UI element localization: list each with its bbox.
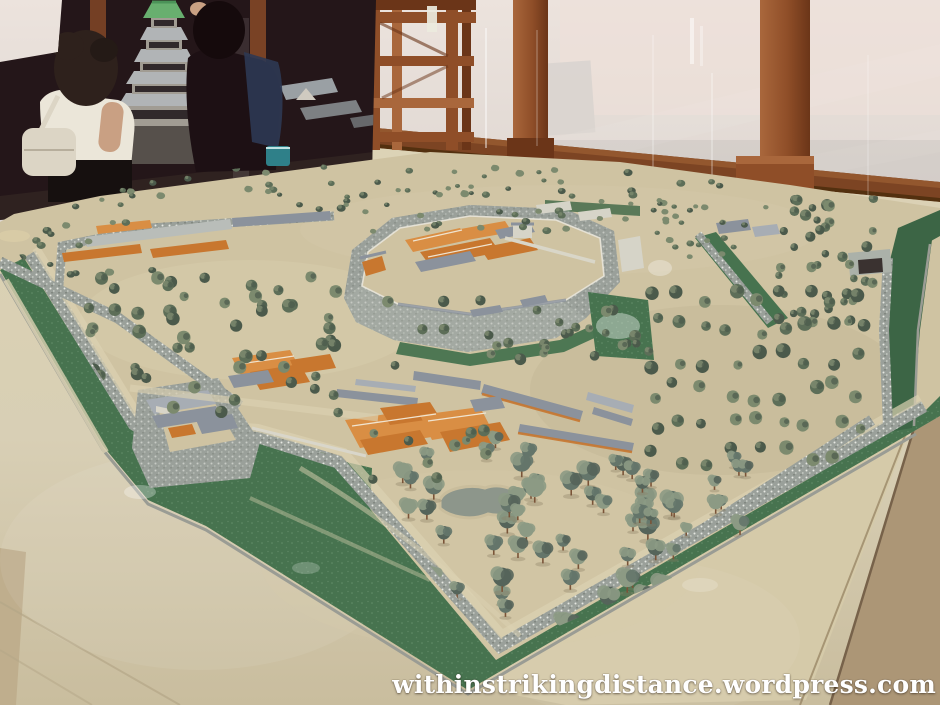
model-tree xyxy=(669,285,682,298)
model-tree xyxy=(672,414,684,426)
model-tree xyxy=(188,381,201,394)
water-reflection xyxy=(682,578,718,592)
model-tree xyxy=(749,411,762,424)
model-tree xyxy=(780,322,792,334)
model-tree xyxy=(776,263,785,272)
model-tree xyxy=(480,448,492,460)
model-tree xyxy=(776,343,791,358)
east-moat-bank xyxy=(884,258,888,426)
head xyxy=(193,1,245,59)
model-tree xyxy=(585,324,593,332)
model-tree xyxy=(779,440,793,454)
model-tree xyxy=(790,310,797,317)
frame-label-card xyxy=(427,6,437,32)
model-tree xyxy=(856,424,866,434)
model-tree xyxy=(815,225,824,234)
model-tree xyxy=(109,303,122,316)
model-tree xyxy=(151,271,164,284)
model-tree xyxy=(278,361,290,373)
model-tree xyxy=(166,312,180,326)
model-tree xyxy=(478,424,490,436)
model-tree xyxy=(750,293,763,306)
model-tree xyxy=(644,347,653,356)
leaning-panel xyxy=(543,60,596,135)
model-tree xyxy=(423,457,434,468)
model-tree xyxy=(503,338,513,348)
tunnel-gate xyxy=(848,249,892,276)
model-tree xyxy=(861,241,872,252)
model-tree xyxy=(806,453,819,466)
model-tree xyxy=(131,307,144,320)
model-tree xyxy=(693,380,705,392)
model-tree xyxy=(273,285,283,295)
model-tree xyxy=(141,373,151,383)
model-tree xyxy=(601,306,612,317)
model-tree xyxy=(792,195,803,206)
model-tree xyxy=(215,406,227,418)
model-tree xyxy=(748,395,761,408)
model-tree xyxy=(172,343,182,353)
model-tree xyxy=(733,360,742,369)
model-tree xyxy=(675,359,686,370)
model-tree xyxy=(328,339,341,352)
model-tree xyxy=(246,280,258,292)
model-tree xyxy=(719,324,731,336)
model-tree xyxy=(219,298,230,309)
model-tree xyxy=(676,457,689,470)
model-tree xyxy=(632,339,640,347)
model-tree xyxy=(773,285,785,297)
model-tree xyxy=(805,232,815,242)
model-tree xyxy=(825,375,839,389)
model-tree xyxy=(417,324,427,334)
model-tree xyxy=(541,344,549,352)
model-tree xyxy=(858,319,871,332)
model-tree xyxy=(439,324,450,335)
light-slit-reflection xyxy=(690,18,694,64)
model-tree xyxy=(533,306,542,315)
model-tree xyxy=(835,415,849,429)
model-tree xyxy=(199,273,209,283)
model-tree xyxy=(790,243,798,251)
model-tree xyxy=(644,445,656,457)
model-tree xyxy=(730,284,744,298)
model-tree xyxy=(867,278,877,288)
model-tree xyxy=(797,419,809,431)
model-tree xyxy=(828,359,840,371)
model-tree xyxy=(809,204,817,212)
model-tree xyxy=(757,329,767,339)
model-tree xyxy=(329,390,339,400)
model-tree xyxy=(180,292,189,301)
model-tree xyxy=(95,272,108,285)
model-tree xyxy=(109,283,120,294)
model-tree xyxy=(850,288,864,302)
model-tree xyxy=(772,393,786,407)
museum-diorama-photo: withinstrikingdistance.wordpress.com xyxy=(0,0,940,705)
model-tree xyxy=(810,380,824,394)
model-tree xyxy=(333,408,343,418)
model-tree xyxy=(730,413,742,425)
model-tree xyxy=(177,331,191,345)
model-tree xyxy=(652,422,664,434)
watermark-text: withinstrikingdistance.wordpress.com xyxy=(392,670,936,699)
shoulder-bag xyxy=(22,128,76,176)
model-tree xyxy=(852,348,864,360)
model-tree xyxy=(316,338,329,351)
light-slit-reflection xyxy=(700,26,703,66)
model-tree xyxy=(779,417,789,427)
model-tree xyxy=(822,250,829,257)
model-tree xyxy=(382,296,394,308)
model-tree xyxy=(484,331,493,340)
model-tree xyxy=(370,429,379,438)
model-tree xyxy=(233,361,246,374)
model-tree xyxy=(590,351,600,361)
model-tree xyxy=(391,361,400,370)
model-tree xyxy=(701,321,711,331)
storehouse xyxy=(618,236,644,272)
model-tree xyxy=(487,349,496,358)
model-tree xyxy=(850,275,858,283)
model-tree xyxy=(849,390,862,403)
model-tree xyxy=(305,271,316,282)
model-tree xyxy=(701,459,713,471)
model-tree xyxy=(673,315,686,328)
model-tree xyxy=(492,341,501,350)
model-tree xyxy=(84,303,95,314)
model-tree xyxy=(840,298,848,306)
model-tree xyxy=(755,442,766,453)
model-tree xyxy=(618,340,628,350)
model-tree xyxy=(256,305,268,317)
model-tree xyxy=(823,200,835,212)
model-tree xyxy=(449,439,461,451)
model-tree xyxy=(286,377,297,388)
model-tree xyxy=(805,285,818,298)
model-tree xyxy=(555,318,563,326)
model-tree xyxy=(844,318,852,326)
model-tree xyxy=(780,227,788,235)
model-tree xyxy=(797,316,812,331)
model-tree xyxy=(515,353,527,365)
model-tree xyxy=(827,316,840,329)
model-tree xyxy=(798,358,809,369)
model-tree xyxy=(256,350,267,361)
model-tree xyxy=(773,313,784,324)
model-tree xyxy=(837,252,847,262)
model-tree xyxy=(602,329,610,337)
model-tree xyxy=(132,325,146,339)
model-tree xyxy=(438,296,449,307)
model-tree xyxy=(282,299,296,313)
model-tree xyxy=(462,436,471,445)
model-tree xyxy=(475,295,485,305)
model-tree xyxy=(653,313,663,323)
model-tree xyxy=(431,472,442,483)
model-tree xyxy=(162,280,173,291)
model-tree xyxy=(85,327,95,337)
model-tree xyxy=(696,419,706,429)
model-tree xyxy=(825,450,839,464)
model-tree xyxy=(645,286,658,299)
water-light-reflection xyxy=(648,260,672,276)
model-tree xyxy=(230,320,242,332)
model-tree xyxy=(229,394,241,406)
model-tree xyxy=(775,272,782,279)
model-tree xyxy=(869,227,877,235)
model-tree xyxy=(796,307,806,317)
model-tree xyxy=(323,322,335,334)
model-tree xyxy=(566,329,574,337)
model-tree xyxy=(404,436,413,445)
model-tree xyxy=(813,216,820,223)
wooden-pillar-center xyxy=(507,0,554,162)
model-tree xyxy=(329,285,342,298)
model-tree xyxy=(800,210,811,221)
model-tree xyxy=(753,345,767,359)
model-tree xyxy=(644,361,658,375)
model-tree xyxy=(650,393,661,404)
model-tree xyxy=(167,401,180,414)
model-tree xyxy=(311,372,320,381)
water-reflection xyxy=(292,562,320,574)
photo-canvas xyxy=(0,0,940,705)
model-tree xyxy=(727,390,739,402)
model-tree xyxy=(368,475,377,484)
model-tree xyxy=(824,297,835,308)
model-tree xyxy=(696,360,709,373)
model-tree xyxy=(806,262,816,272)
model-tree xyxy=(184,342,194,352)
model-tree xyxy=(310,384,320,394)
model-tree xyxy=(324,313,334,323)
model-tree xyxy=(667,377,678,388)
model-tree xyxy=(845,260,854,269)
model-tree xyxy=(790,206,800,216)
model-tree xyxy=(699,296,711,308)
